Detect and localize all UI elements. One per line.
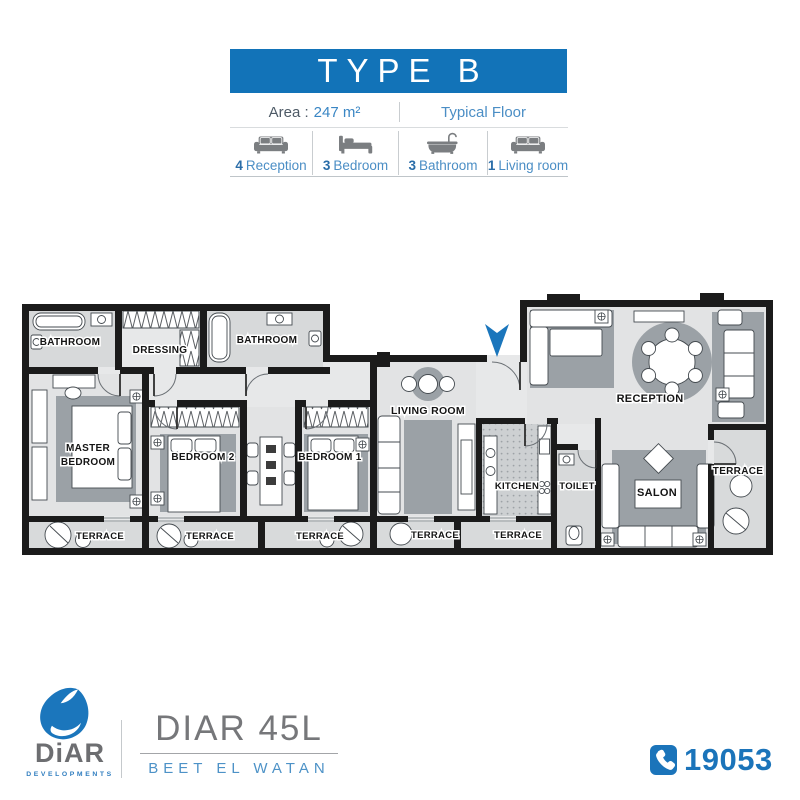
room-label-living: LIVING ROOM xyxy=(391,405,465,417)
type-title: TYPE B xyxy=(317,52,488,90)
legend-label: 1Living room xyxy=(488,158,568,173)
project-name: DIAR 45L xyxy=(140,710,338,749)
brand-tagline: DEVELOPMENTS xyxy=(22,771,118,778)
project-tagline: BEET EL WATAN xyxy=(140,760,338,777)
room-label-master-1: MASTER xyxy=(66,443,110,454)
project-rule xyxy=(140,753,338,754)
area-label: Area : xyxy=(269,104,309,121)
phone-badge: 19053 xyxy=(650,742,773,778)
legend-item-reception: 4Reception xyxy=(230,131,313,175)
bathtub-icon xyxy=(427,133,459,155)
footer-divider xyxy=(121,720,122,778)
header-rule-top xyxy=(230,127,568,128)
room-label-salon: SALON xyxy=(637,487,677,499)
floor-type: Typical Floor xyxy=(400,104,567,121)
bed-icon xyxy=(339,133,373,155)
brand-name: DiAR xyxy=(22,738,118,769)
legend-label: 3Bathroom xyxy=(408,158,477,173)
room-label-terrace-2: TERRACE xyxy=(186,531,234,542)
type-badge: TYPE B xyxy=(230,49,567,93)
phone-number: 19053 xyxy=(684,742,773,778)
room-label-master-2: BEDROOM xyxy=(61,457,115,468)
room-label-toilet: TOILET xyxy=(559,481,594,492)
entrance-arrow-icon xyxy=(485,324,509,357)
area-value: 247 m² xyxy=(314,104,361,121)
flyer-page: TYPE B Area : 247 m² Typical Floor 4Rece… xyxy=(0,0,800,800)
area-cell: Area : 247 m² xyxy=(230,104,399,121)
legend-item-bedroom: 3Bedroom xyxy=(313,131,399,175)
floorplan: BATHROOM DRESSING BATHROOM MASTER BEDROO… xyxy=(20,290,780,580)
room-label-kitchen: KITCHEN xyxy=(495,481,539,492)
room-label-terrace-4: TERRACE xyxy=(411,530,459,541)
sofa-icon xyxy=(511,133,545,155)
legend-label: 4Reception xyxy=(235,158,306,173)
room-label-terrace-5: TERRACE xyxy=(494,530,542,541)
legend-item-bathroom: 3Bathroom xyxy=(399,131,488,175)
room-label-dressing: DRESSING xyxy=(133,345,188,356)
header-rule-bottom xyxy=(230,176,568,177)
phone-icon xyxy=(650,745,677,775)
project-block: DIAR 45L BEET EL WATAN xyxy=(140,710,338,777)
legend-item-living: 1Living room xyxy=(488,131,568,175)
sofa-icon xyxy=(254,133,288,155)
legend-label: 3Bedroom xyxy=(323,158,388,173)
room-label-terrace-3: TERRACE xyxy=(296,531,344,542)
room-label-terrace-1: TERRACE xyxy=(76,531,124,542)
room-label-bathroom-mid: BATHROOM xyxy=(237,335,298,346)
legend: 4Reception 3Bedroom 3Bathroom 1Living ro… xyxy=(230,131,568,175)
info-row: Area : 247 m² Typical Floor xyxy=(230,97,567,127)
room-label-bathroom-left: BATHROOM xyxy=(40,337,101,348)
room-label-bedroom1: BEDROOM 1 xyxy=(298,452,361,463)
room-label-reception: RECEPTION xyxy=(617,393,684,405)
room-label-terrace-right: TERRACE xyxy=(713,466,763,477)
room-label-bedroom2: BEDROOM 2 xyxy=(171,452,234,463)
